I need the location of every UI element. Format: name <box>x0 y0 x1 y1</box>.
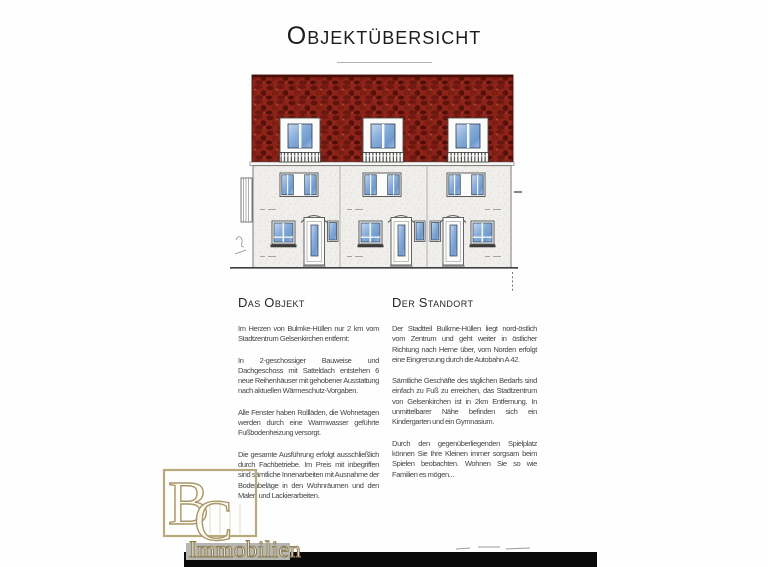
section-der-standort: Der Standort Der Stadtteil Bulkme-Hüllen… <box>392 296 537 491</box>
dormer-windows <box>280 118 489 162</box>
building-elevation-drawing <box>222 70 522 300</box>
paragraph: Durch den gegenüberliegenden Spielplatz … <box>392 439 537 480</box>
title-underline <box>337 62 432 63</box>
section-heading: Der Standort <box>392 296 537 310</box>
upper-floor-windows <box>280 173 485 197</box>
section-heading: Das Objekt <box>238 296 379 310</box>
watermark-caption: Immobilien <box>189 537 301 562</box>
paragraph: Sämtliche Geschäfte des täglichen Bedarf… <box>392 376 537 427</box>
paragraph: Der Stadtteil Bulkme-Hüllen liegt nord-ö… <box>392 324 537 365</box>
paragraph: Alle Fenster haben Rollläden, die Wohnet… <box>238 408 379 439</box>
page-title: Objektübersicht <box>0 22 768 51</box>
company-watermark-logo: B C Immobilien <box>152 464 302 564</box>
hand-scribble <box>235 237 246 254</box>
paragraph: In 2-geschossiger Bauweise und Dachgesch… <box>238 356 379 397</box>
brochure-page: Objektübersicht <box>0 0 768 567</box>
eaves <box>250 162 514 166</box>
paragraph: Im Herzen von Bulmke-Hüllen nur 2 km vom… <box>238 324 379 345</box>
side-rail <box>241 178 252 222</box>
